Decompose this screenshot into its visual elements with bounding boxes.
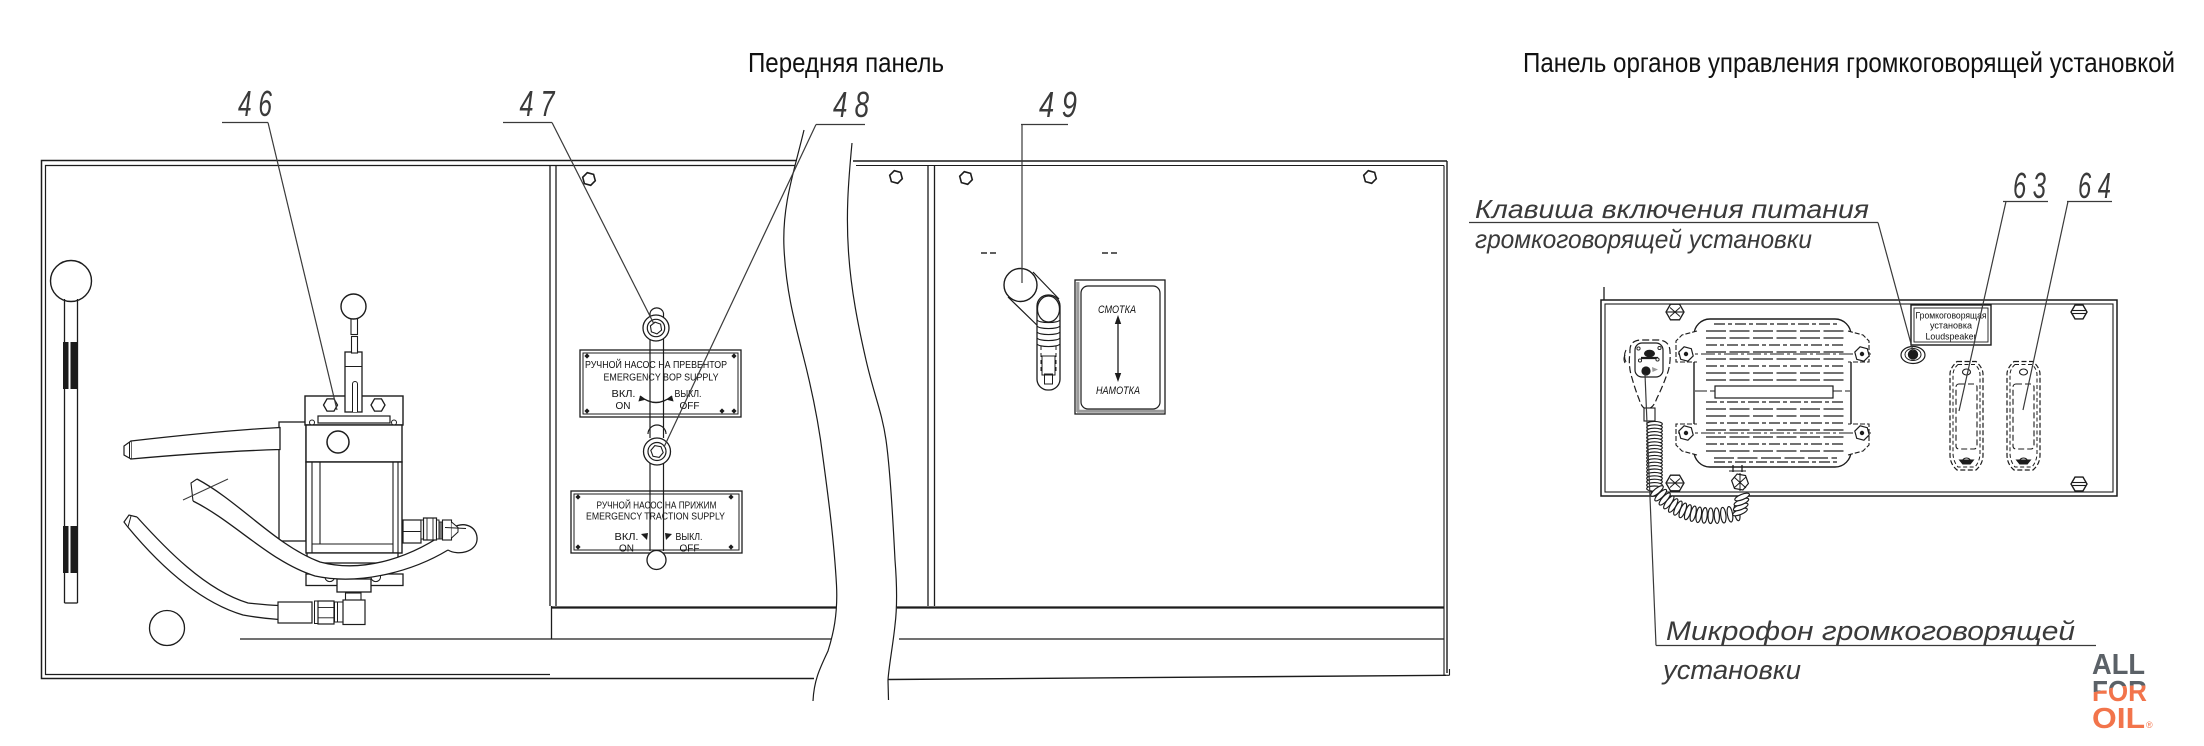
svg-text:Панель органов управления гром: Панель органов управления громкоговоряще…: [1523, 47, 2175, 78]
svg-text:ВКЛ.: ВКЛ.: [612, 388, 636, 400]
svg-text:OFF: OFF: [680, 543, 700, 555]
svg-text:ВКЛ.: ВКЛ.: [615, 531, 639, 543]
svg-text:6 4: 6 4: [2078, 165, 2111, 206]
svg-text:установка: установка: [1930, 321, 1972, 331]
svg-text:РУЧНОЙ НАСОС НА ПРЕВЕНТОР: РУЧНОЙ НАСОС НА ПРЕВЕНТОР: [585, 358, 727, 371]
svg-text:Передняя панель: Передняя панель: [748, 47, 944, 78]
svg-text:установки: установки: [1661, 655, 1801, 685]
svg-text:OIL: OIL: [2092, 703, 2145, 735]
svg-text:СМОТКА: СМОТКА: [1098, 304, 1136, 316]
svg-text:ВЫКЛ.: ВЫКЛ.: [675, 388, 702, 400]
svg-text:®: ®: [2146, 720, 2153, 730]
svg-text:ON: ON: [619, 543, 634, 555]
svg-text:Loudspeaker: Loudspeaker: [1926, 332, 1977, 342]
svg-text:EMERGENCY TRACTION SUPPLY: EMERGENCY TRACTION SUPPLY: [586, 511, 725, 523]
svg-text:громкоговорящей установки: громкоговорящей установки: [1475, 224, 1812, 254]
svg-text:4 6: 4 6: [238, 83, 273, 124]
svg-text:4 8: 4 8: [833, 84, 869, 125]
svg-text:ON: ON: [616, 400, 631, 412]
svg-text:ВЫКЛ.: ВЫКЛ.: [676, 531, 703, 543]
svg-text:НАМОТКА: НАМОТКА: [1096, 385, 1140, 397]
svg-text:Микрофон громкоговорящей: Микрофон громкоговорящей: [1666, 616, 2075, 646]
svg-text:Клавиша включения питания: Клавиша включения питания: [1475, 194, 1869, 224]
svg-text:OFF: OFF: [680, 400, 700, 412]
svg-text:4 9: 4 9: [1039, 84, 1077, 125]
svg-text:EMERGENCY BOP SUPPLY: EMERGENCY BOP SUPPLY: [604, 372, 719, 384]
svg-text:4 7: 4 7: [520, 83, 556, 124]
svg-text:6 3: 6 3: [2013, 165, 2046, 206]
svg-text:Громкоговорящая: Громкоговорящая: [1916, 311, 1987, 321]
